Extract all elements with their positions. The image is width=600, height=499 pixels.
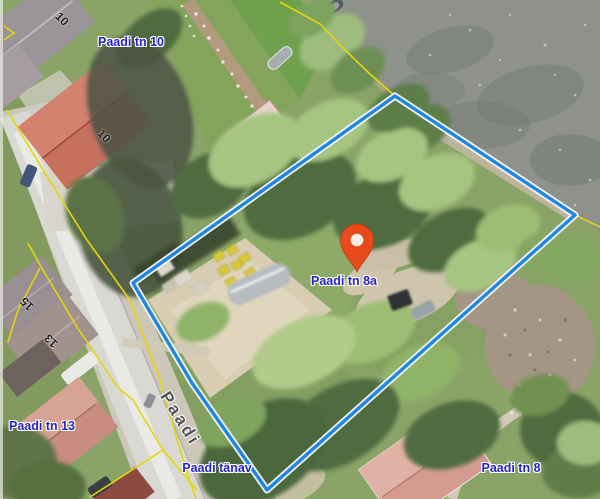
aerial-photo-background: [0, 0, 600, 499]
map-canvas[interactable]: Paadi Paadi tn 10Paadi tn 8aPaadi tn 13P…: [0, 0, 600, 499]
